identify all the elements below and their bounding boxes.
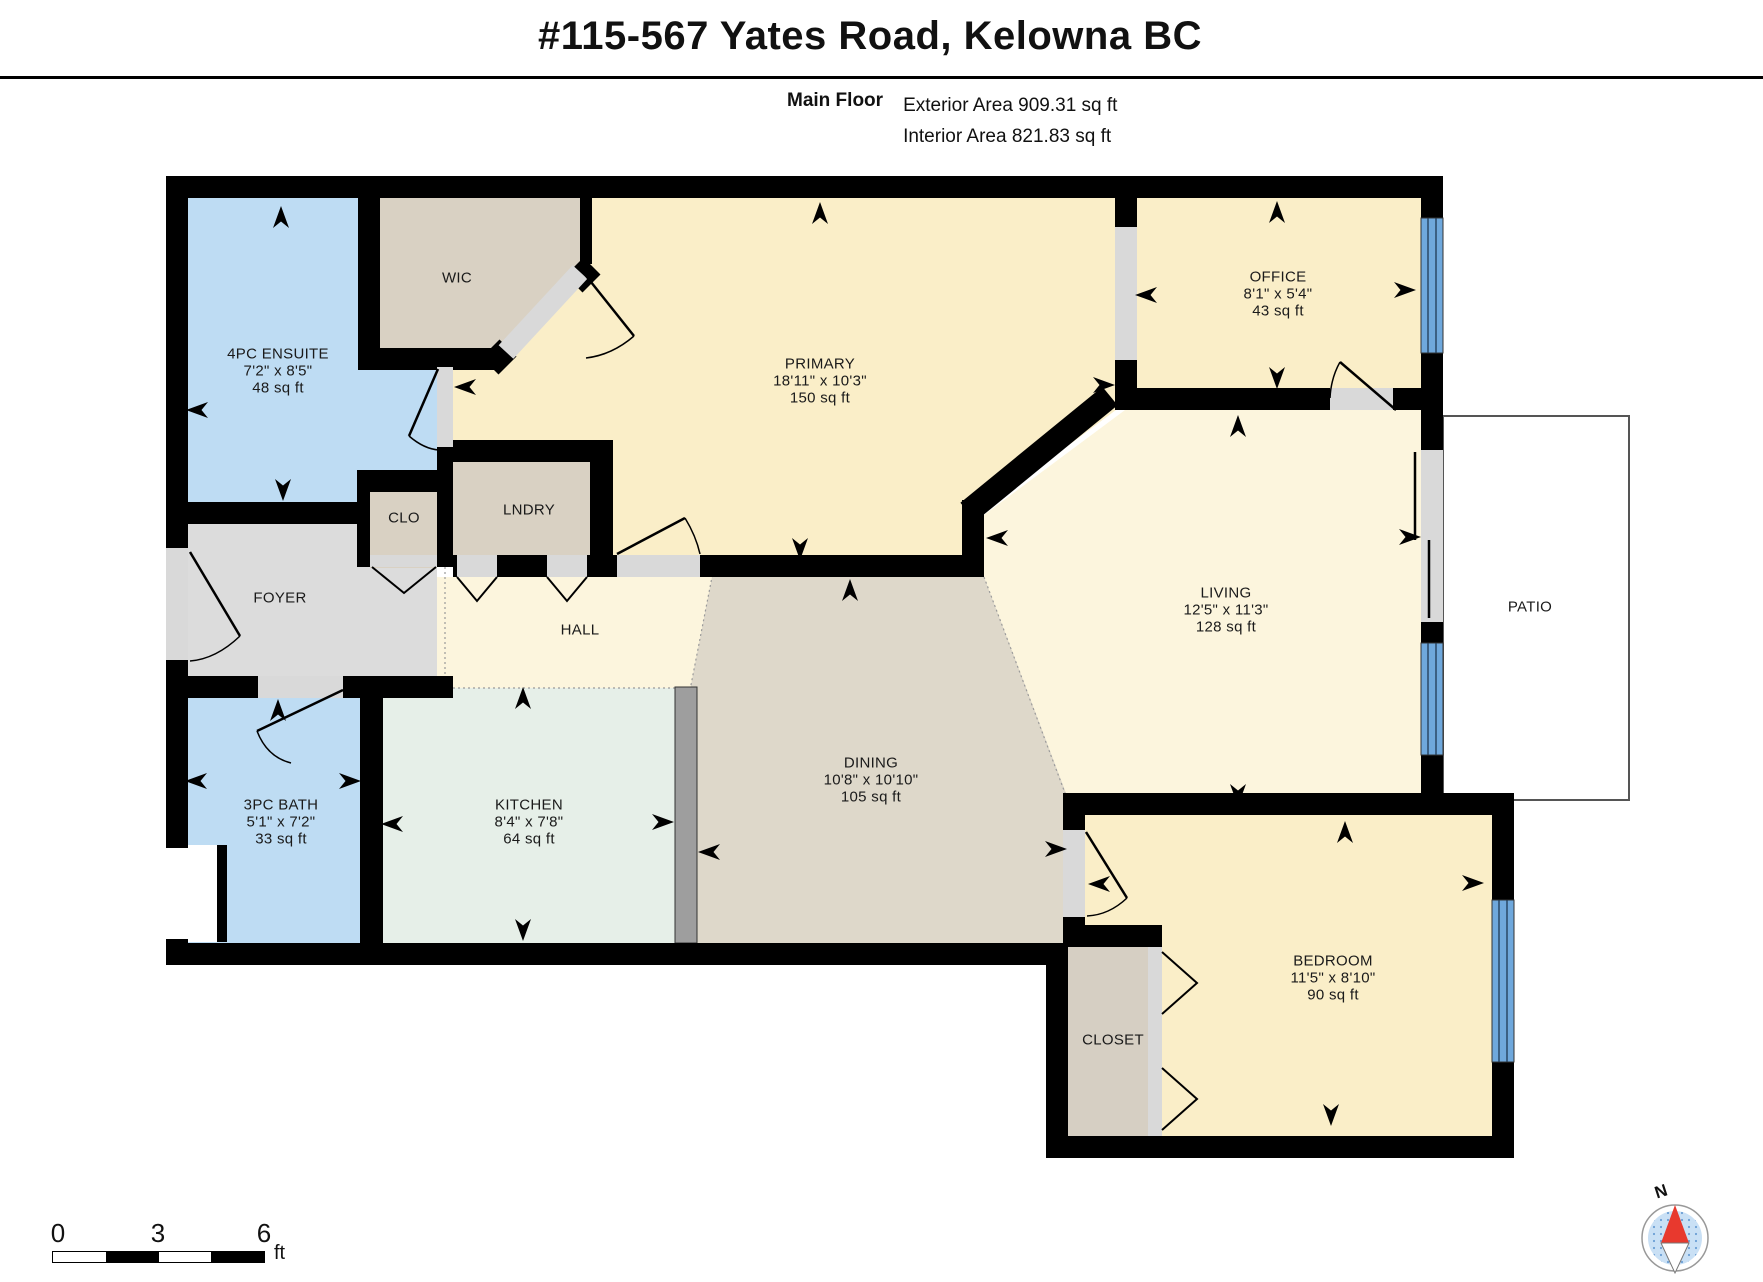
room-label-primary: PRIMARY 18'11" x 10'3" 150 sq ft (773, 356, 867, 407)
room-label-lndry: LNDRY (503, 502, 555, 519)
scale-unit: ft (274, 1242, 285, 1265)
floorplan-drawing (0, 0, 1763, 1282)
room-label-dining: DINING 10'8" x 10'10" 105 sq ft (824, 755, 919, 806)
scale-tick-6: 6 (257, 1218, 271, 1249)
scale-tick-3: 3 (151, 1218, 165, 1249)
room-label-kitchen: KITCHEN 8'4" x 7'8" 64 sq ft (495, 797, 564, 848)
room-label-foyer: FOYER (253, 590, 306, 607)
room-label-office: OFFICE 8'1" x 5'4" 43 sq ft (1244, 269, 1313, 320)
room-label-ensuite: 4PC ENSUITE 7'2" x 8'5" 48 sq ft (227, 346, 329, 397)
room-label-bedroom: BEDROOM 11'5" x 8'10" 90 sq ft (1290, 953, 1375, 1004)
scale-tick-0: 0 (51, 1218, 65, 1249)
room-label-patio: PATIO (1508, 599, 1552, 616)
floorplan-page: #115-567 Yates Road, Kelowna BC Main Flo… (0, 0, 1763, 1282)
room-label-bath: 3PC BATH 5'1" x 7'2" 33 sq ft (244, 797, 319, 848)
room-label-hall: HALL (561, 622, 600, 639)
scale-bar-segments (52, 1251, 265, 1263)
room-label-living: LIVING 12'5" x 11'3" 128 sq ft (1183, 585, 1268, 636)
room-label-wic: WIC (442, 270, 472, 287)
kitchen-counter (675, 687, 697, 943)
room-label-closet: CLOSET (1082, 1032, 1144, 1049)
scale-bar: 0 3 6 ft (52, 1218, 352, 1270)
compass-rose-icon (1642, 1205, 1708, 1273)
room-label-clo: CLO (388, 510, 420, 527)
